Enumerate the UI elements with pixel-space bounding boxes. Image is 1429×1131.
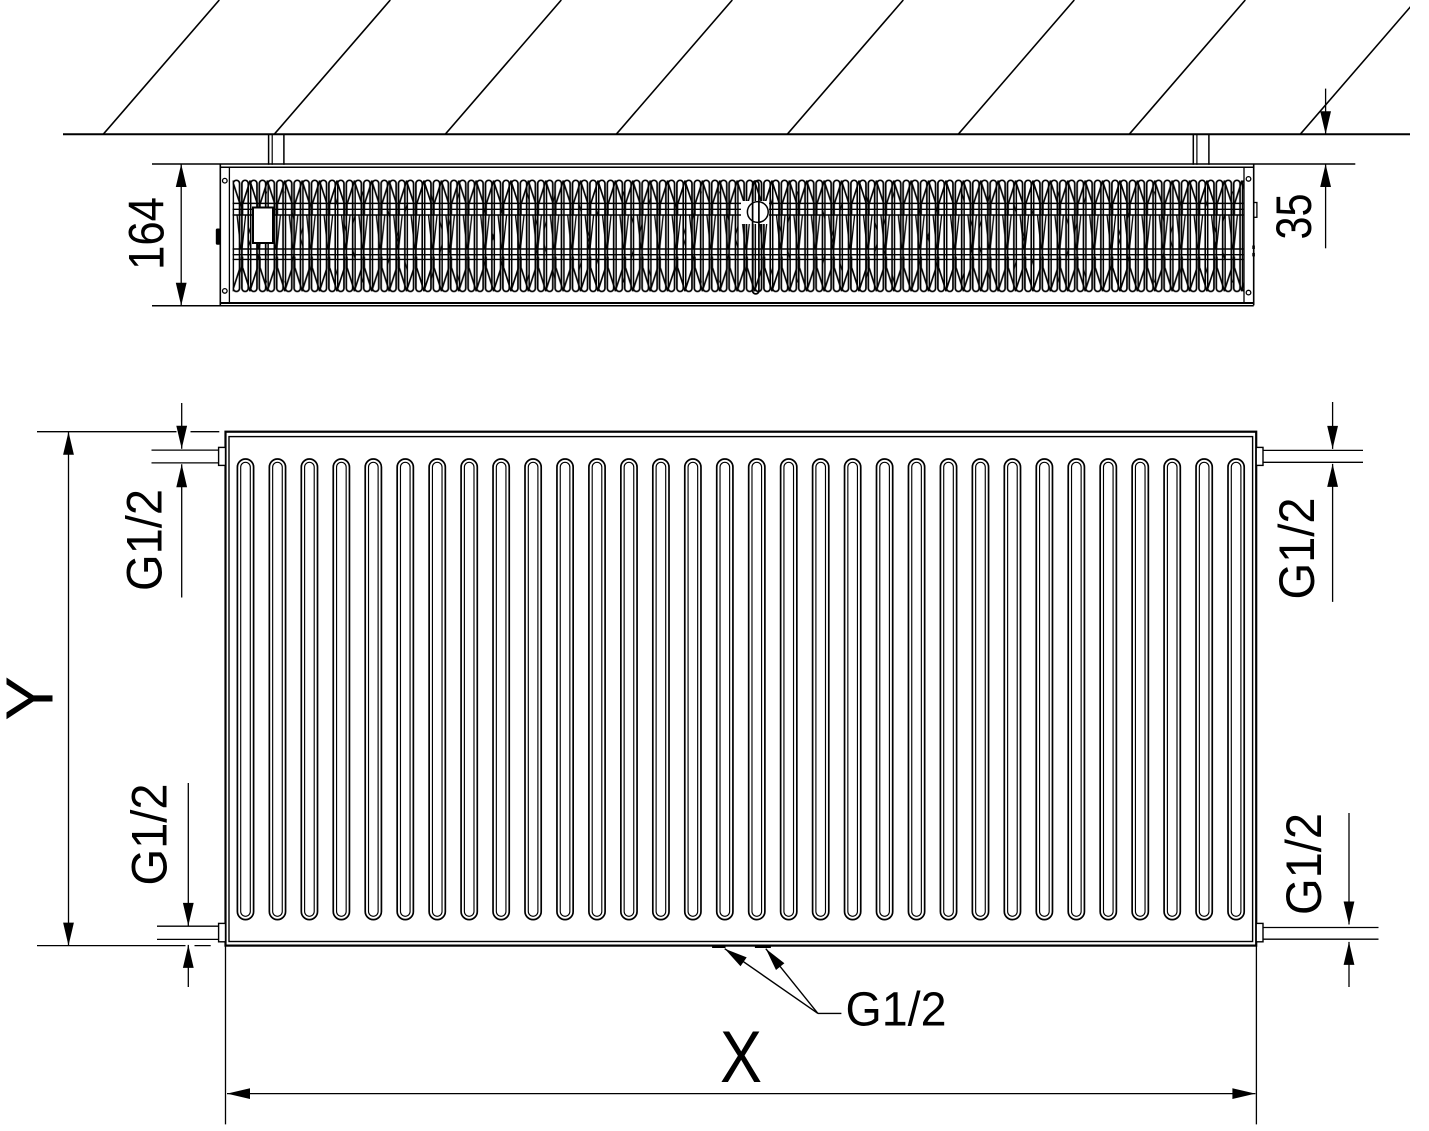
svg-text:35: 35 [1266,194,1322,240]
svg-text:X: X [720,1017,762,1098]
svg-text:G1/2: G1/2 [117,489,173,591]
svg-text:Y: Y [0,676,68,721]
svg-text:G1/2: G1/2 [122,784,178,886]
svg-text:G1/2: G1/2 [1276,813,1332,915]
svg-text:164: 164 [119,197,175,270]
svg-text:G1/2: G1/2 [846,984,947,1037]
svg-text:G1/2: G1/2 [1269,498,1325,600]
